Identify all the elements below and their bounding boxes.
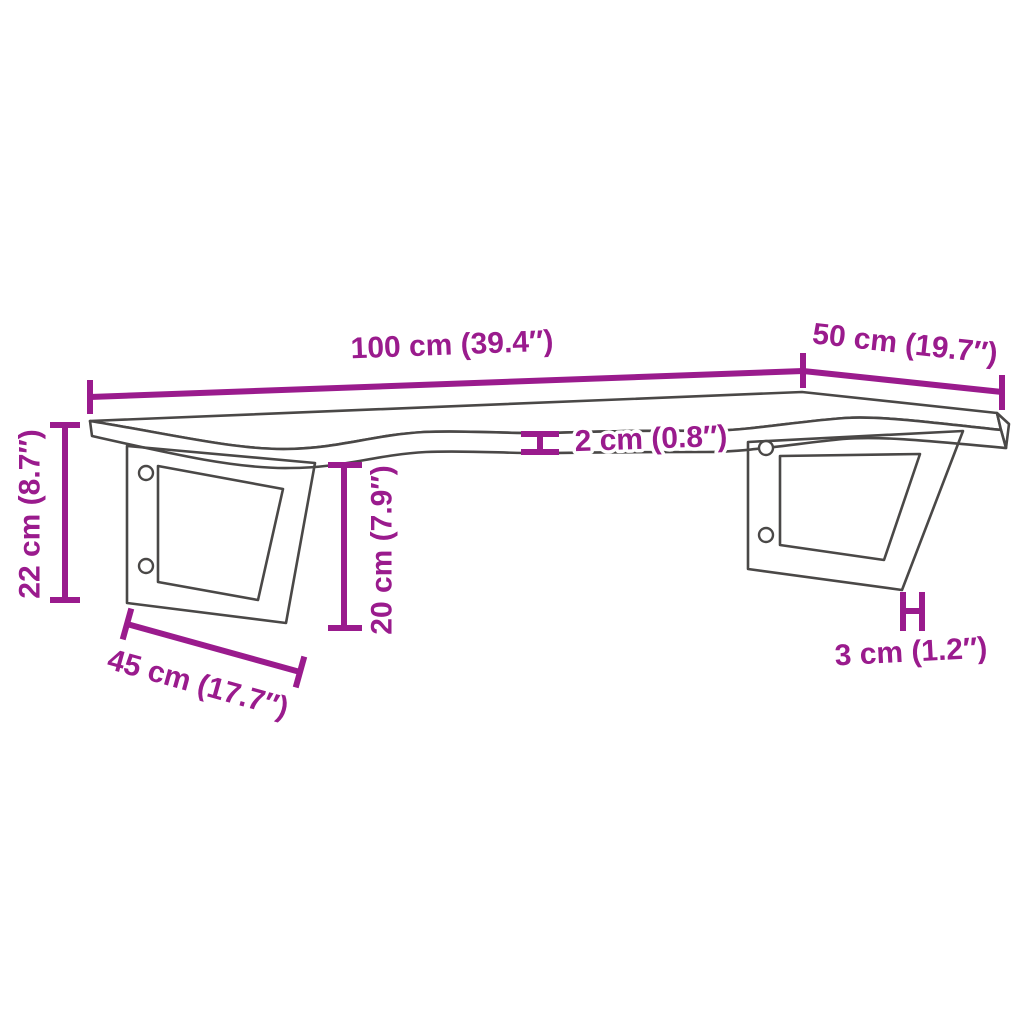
height-dimension: 22 cm (8.7″) xyxy=(14,425,81,600)
bracket-width-dimension-label: 3 cm (1.2″) xyxy=(834,632,988,673)
bracket-depth-dimension-tick xyxy=(296,657,305,688)
length-dimension-label: 100 cm (39.4″) xyxy=(350,325,554,366)
left-bracket xyxy=(127,446,315,623)
shelf-board xyxy=(90,392,1009,468)
height-dimension-label: 22 cm (8.7″) xyxy=(14,429,47,598)
bracket-depth-dimension-label: 45 cm (17.7″) xyxy=(104,643,292,725)
right-bracket xyxy=(748,431,963,590)
bracket-depth-dimension-tick xyxy=(123,609,132,640)
screw-hole xyxy=(139,559,153,573)
diagram-canvas: 100 cm (39.4″) 50 cm (19.7″) 22 cm (8.7″… xyxy=(0,0,1024,1024)
dimension-diagram: 100 cm (39.4″) 50 cm (19.7″) 22 cm (8.7″… xyxy=(0,0,1024,1024)
screw-hole xyxy=(139,466,153,480)
bracket-height-dimension: 20 cm (7.9″) xyxy=(328,465,399,635)
bracket-height-dimension-label: 20 cm (7.9″) xyxy=(366,465,399,634)
screw-hole xyxy=(759,528,773,542)
bracket-depth-dimension: 45 cm (17.7″) xyxy=(104,609,304,725)
left-bracket-outer-frame xyxy=(127,446,315,623)
screw-hole xyxy=(759,441,773,455)
depth-dimension-line xyxy=(803,371,1002,392)
depth-dimension-label: 50 cm (19.7″) xyxy=(811,317,1000,370)
right-bracket-inner-cutout xyxy=(780,454,920,560)
left-bracket-inner-cutout xyxy=(158,466,283,600)
bracket-width-dimension: 3 cm (1.2″) xyxy=(834,592,988,672)
thickness-dimension-label: 2 cm (0.8″) xyxy=(574,420,728,458)
length-dimension-line xyxy=(90,371,803,397)
